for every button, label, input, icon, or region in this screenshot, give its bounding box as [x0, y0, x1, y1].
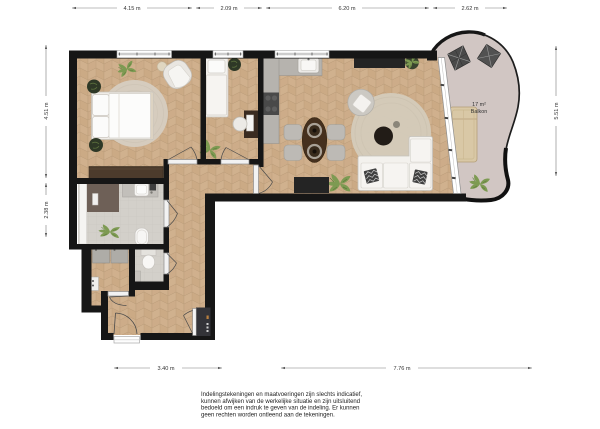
svg-text:3.40 m: 3.40 m [157, 366, 174, 372]
svg-text:6.20 m: 6.20 m [338, 6, 355, 12]
svg-text:Indelingstekeningen en maatvoe: Indelingstekeningen en maatvoeringen zij… [201, 392, 362, 398]
svg-text:7.76 m: 7.76 m [393, 366, 410, 372]
svg-text:2.62 m: 2.62 m [461, 6, 478, 12]
svg-text:4.15 m: 4.15 m [123, 6, 140, 12]
svg-text:2.38 m: 2.38 m [44, 201, 50, 218]
svg-text:4.51 m: 4.51 m [44, 102, 50, 119]
svg-text:Balkon: Balkon [471, 109, 487, 115]
svg-text:kunnen afwijken van de werkeli: kunnen afwijken van de werkelijke situat… [201, 399, 360, 405]
svg-text:17 m²: 17 m² [472, 102, 486, 108]
svg-text:5.51 m: 5.51 m [554, 102, 560, 119]
svg-text:geen rechten worden ontleend a: geen rechten worden ontleend aan de teke… [201, 412, 335, 418]
svg-text:2.09 m: 2.09 m [220, 6, 237, 12]
svg-text:bedoeld om een indruk te geven: bedoeld om een indruk te geven van de in… [201, 406, 359, 412]
